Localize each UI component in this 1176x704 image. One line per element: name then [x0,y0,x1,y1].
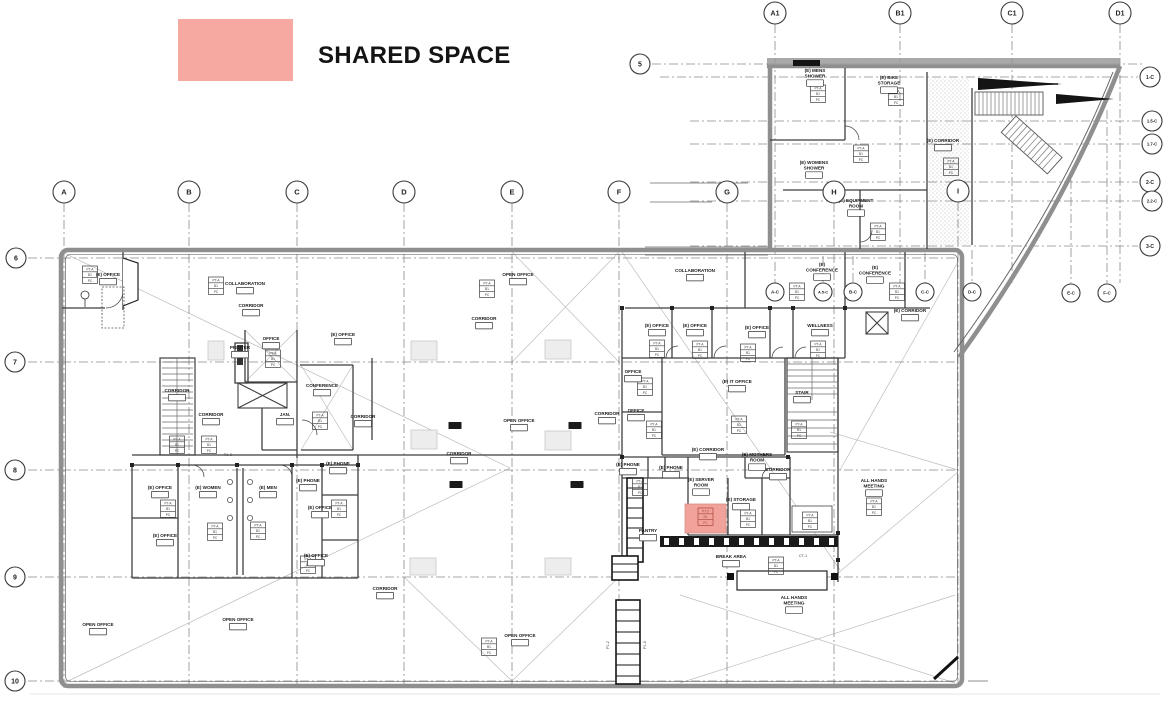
svg-text:PT-A: PT-A [772,558,780,562]
svg-text:PT-A: PT-A [744,345,752,349]
svg-text:F: F [617,188,622,197]
svg-text:(E) PHONE: (E) PHONE [296,478,320,483]
svg-text:B1: B1 [88,273,92,277]
svg-text:(E) WOMEN: (E) WOMEN [195,485,221,490]
svg-text:(E) BIKE: (E) BIKE [880,75,898,80]
finish-tag: PT-AB1PC [871,223,886,240]
svg-text:OPEN OFFICE: OPEN OFFICE [222,617,253,622]
room-label: CORRIDOR [446,451,472,464]
grid-bubble-D-C: D-C [963,283,981,301]
svg-text:PC: PC [816,98,821,102]
grid-bubble-I: I [947,180,969,202]
svg-text:BREAK AREA: BREAK AREA [716,554,747,559]
grid-bubble-6: 6 [6,248,26,268]
svg-text:B1: B1 [859,152,863,156]
svg-text:B1: B1 [166,507,170,511]
svg-text:1.5-C: 1.5-C [1147,119,1157,124]
svg-text:PT-A: PT-A [485,639,493,643]
stair-annex-straight [975,92,1043,115]
svg-text:B1: B1 [795,290,799,294]
finish-tag: PT-AB1PC [854,145,869,162]
svg-text:PC: PC [487,651,492,655]
grid-bubble-3-C: 3-C [1140,236,1160,256]
svg-text:CORRIDOR: CORRIDOR [198,412,224,417]
legend-swatch-shared-space [178,19,293,81]
svg-text:PC: PC [795,296,800,300]
room-label: ALL HANDSMEETING [781,595,807,613]
room-label: (E) OFFICE [331,332,355,345]
room-label: CORRIDOR [238,303,264,316]
svg-text:2.2-C: 2.2-C [1147,199,1157,204]
finish-tag: PT-AB1PC [890,283,905,300]
svg-text:ROOM: ROOM [694,482,708,487]
room-label: (E) WOMEN [195,485,221,498]
svg-text:PC: PC [895,296,900,300]
svg-text:OFFICE: OFFICE [263,336,280,341]
grid-lines [28,24,1145,688]
svg-text:SHOWER: SHOWER [804,165,825,170]
grid-bubble-10: 10 [5,671,25,691]
room-label: (E) WOMENSSHOWER [800,160,829,178]
grid-bubble-5: 5 [630,54,650,74]
grid-bubble-1.7-C: 1.7-C [1142,134,1162,154]
room-label: (E) PHONE [659,465,683,478]
svg-text:A.5-C: A.5-C [818,290,828,294]
grid-bubble-D: D [393,181,415,203]
svg-text:PT-A: PT-A [211,524,219,528]
kitchen-counter [660,536,838,547]
grid-bubble-G: G [716,181,738,203]
svg-text:B1: B1 [746,517,750,521]
room-label: COLLABORATION [675,268,716,281]
grid-bubble-C-C: C-C [916,283,934,301]
finish-tag: PT-AB1PC [741,344,756,361]
svg-text:P1-2: P1-2 [606,641,610,649]
svg-text:B1: B1 [652,428,656,432]
svg-text:PT-A: PT-A [254,523,262,527]
svg-text:WELLNESS: WELLNESS [807,323,833,328]
room-label: ALL HANDSMEETING [861,478,887,496]
svg-text:PT-A: PT-A [806,513,814,517]
svg-text:(E) OFFICE: (E) OFFICE [683,323,707,328]
svg-text:(E) OFFICE: (E) OFFICE [745,325,769,330]
svg-text:(E) OFFICE: (E) OFFICE [96,272,120,277]
svg-text:ROOM: ROOM [750,457,764,462]
svg-text:9: 9 [13,575,17,582]
svg-text:PC: PC [643,391,648,395]
svg-text:H: H [831,188,836,197]
svg-text:CONFERENCE: CONFERENCE [859,270,891,275]
finish-tag: PT-AB1PC [170,436,185,453]
room-label: (E)CONFERENCE [806,262,838,280]
finish-tag: PT-AB1PC [482,638,497,655]
svg-text:PC: PC [797,434,802,438]
grid-bubble-E-C: E-C [1062,284,1080,302]
svg-text:A: A [61,188,67,197]
svg-text:B1: B1 [207,443,211,447]
svg-text:JAN.: JAN. [280,412,290,417]
svg-text:PT-5: PT-5 [702,509,709,513]
svg-text:B1: B1 [643,385,647,389]
grid-bubble-A1: A1 [764,2,786,24]
grid-bubble-F: F [608,181,630,203]
svg-text:5: 5 [638,62,642,69]
svg-text:CONFERENCE: CONFERENCE [306,383,338,388]
svg-text:10: 10 [11,679,19,686]
room-label: (E) OFFICE [148,485,172,498]
svg-text:B1: B1 [737,423,741,427]
svg-text:PC: PC [652,434,657,438]
room-label: (E) OFFICE [308,505,332,518]
svg-text:PT-A: PT-A [795,422,803,426]
svg-text:A1: A1 [771,11,780,18]
room-label: JAN. [277,412,294,425]
room-label: (E) OFFICE [304,553,328,566]
legend-label: SHARED SPACE [318,42,511,70]
pantry-cabinets [612,478,643,684]
door-panel [123,258,138,306]
svg-text:PC: PC [306,569,311,573]
svg-text:B: B [186,188,192,197]
svg-text:PT-A: PT-A [212,278,220,282]
svg-text:(E) IT OFFICE: (E) IT OFFICE [722,379,752,384]
svg-text:OPEN OFFICE: OPEN OFFICE [82,622,113,627]
svg-text:PT-A: PT-A [857,146,865,150]
legend: SHARED SPACE [0,0,520,100]
svg-text:(E) PHONE: (E) PHONE [616,462,640,467]
grid-bubble-A: A [53,181,75,203]
svg-text:6: 6 [14,256,18,263]
svg-text:CORRIDOR: CORRIDOR [164,388,190,393]
svg-text:PC: PC [318,425,323,429]
room-label: (E) OFFICE [683,323,707,336]
svg-text:B1: B1 [774,564,778,568]
svg-text:PT-A: PT-A [814,86,822,90]
svg-text:PT-A: PT-A [335,501,343,505]
grid-bubble-1-C: 1-C [1140,67,1160,87]
finish-tag: PT-AB1PC [741,510,756,527]
svg-text:ALL HANDS: ALL HANDS [781,595,807,600]
diagonal-lines [62,252,958,684]
room-label: PRINTER [230,345,251,358]
svg-text:ALL HANDS: ALL HANDS [861,478,887,483]
svg-text:(E) OFFICE: (E) OFFICE [331,332,355,337]
room-label: (E) BIKESTORAGE [878,75,901,93]
room-label: (E) EQUIPMENTROOM [839,198,874,216]
svg-text:PC: PC [214,290,219,294]
grid-bubble-B-C: B-C [844,283,862,301]
svg-text:PT-A: PT-A [173,437,181,441]
svg-text:OPEN OFFICE: OPEN OFFICE [503,418,534,423]
svg-text:G: G [724,188,730,197]
svg-text:PC: PC [746,357,751,361]
svg-text:(E) MEN: (E) MEN [259,485,277,490]
grid-bubble-E: E [501,181,523,203]
svg-text:PC: PC [698,354,703,358]
svg-text:D1: D1 [1116,11,1125,18]
svg-text:I: I [957,187,959,196]
svg-text:PT-A: PT-A [316,413,324,417]
svg-text:PC: PC [703,521,708,525]
svg-text:PT-A: PT-A [650,422,658,426]
svg-text:COLLABORATION: COLLABORATION [675,268,716,273]
section-mark [934,657,958,679]
svg-text:P1-0: P1-0 [643,641,647,649]
svg-text:PT-A: PT-A [874,224,882,228]
svg-text:B1: B1 [256,529,260,533]
svg-text:(E) MENS: (E) MENS [805,68,826,73]
svg-text:(E) OFFICE: (E) OFFICE [645,323,669,328]
svg-text:PT-A: PT-A [653,341,661,345]
svg-text:B1: B1 [816,92,820,96]
svg-text:PT-A: PT-A [269,351,277,355]
finish-tag: PT-AB1PC [811,341,826,358]
room-label: (E) OFFICE [745,325,769,338]
svg-text:B1: B1 [213,530,217,534]
svg-text:PC: PC [949,171,954,175]
svg-text:PC: PC [207,449,212,453]
finish-tag: PT-AB1PC [811,85,826,102]
grid-bubble-A.5-C: A.5-C [814,283,832,301]
svg-text:(E) OFFICE: (E) OFFICE [153,533,177,538]
svg-text:CORRIDOR: CORRIDOR [765,467,791,472]
svg-text:B1: B1 [949,165,953,169]
svg-text:CORRIDOR: CORRIDOR [238,303,264,308]
finish-tag: PT-AB1PC [332,500,347,517]
floor-plan-drawing: PT-5B1PCPT-AB1PCPT-AB1PCPT-AB1PCPT-AB1PC… [0,0,1176,704]
svg-text:B1: B1 [175,443,179,447]
svg-text:CORRIDOR: CORRIDOR [350,414,376,419]
room-label: (E) STORAGE [726,497,756,510]
grid-bubble-C: C [286,181,308,203]
svg-text:STAIR: STAIR [795,390,809,395]
svg-text:B1: B1 [876,230,880,234]
room-label: STAIR [794,390,811,403]
room-label: (E) OFFICE [645,323,669,336]
finish-tag: PT-AB1PC [867,498,882,515]
floor-plan-canvas: PT-5B1PCPT-AB1PCPT-AB1PCPT-AB1PCPT-AB1PC… [0,0,1176,704]
svg-text:8: 8 [13,468,17,475]
svg-text:(E) OFFICE: (E) OFFICE [308,505,332,510]
svg-text:PT-A: PT-A [636,479,644,483]
svg-text:PRINTER: PRINTER [230,345,251,350]
grid-bubble-C1: C1 [1001,2,1023,24]
grid-bubble-9: 9 [5,567,25,587]
break-table [737,571,827,590]
room-label: (E) CORRIDOR [692,447,725,460]
room-label: CORRIDOR [164,388,190,401]
svg-text:PT-A: PT-A [870,499,878,503]
room-label: OFFICE [263,336,280,349]
room-label: PANTRY [639,528,657,541]
room-label: WELLNESS [807,323,833,336]
svg-text:P1-C: P1-C [224,453,233,457]
svg-text:PT-A: PT-A [893,284,901,288]
svg-text:7: 7 [13,360,17,367]
svg-text:C: C [294,188,300,197]
finish-tag: PT-AB1PC [202,436,217,453]
svg-text:STORAGE: STORAGE [878,80,901,85]
svg-text:PC: PC [166,513,171,517]
interior-walls [62,68,972,582]
svg-text:PT-A: PT-A [696,342,704,346]
svg-text:(E) OFFICE: (E) OFFICE [148,485,172,490]
svg-text:PC: PC [859,158,864,162]
room-label: OPEN OFFICE [502,272,533,285]
svg-text:B1: B1 [698,348,702,352]
grid-bubble-F-C: F-C [1098,284,1116,302]
svg-text:E-C: E-C [1067,291,1076,296]
room-label: COLLABORATION [225,281,266,294]
room-label: OFFICE [625,369,642,382]
finish-tag: PT-AB1PC [161,500,176,517]
svg-text:OFFICE: OFFICE [625,369,642,374]
grid-bubble-1.5-C: 1.5-C [1142,111,1162,131]
svg-text:PC: PC [894,101,899,105]
svg-text:CONFERENCE: CONFERENCE [806,267,838,272]
svg-text:B1: B1 [872,505,876,509]
svg-text:B1: B1 [271,357,275,361]
svg-text:PC: PC [213,536,218,540]
svg-text:C-C: C-C [921,290,930,295]
room-label: CORRIDOR [198,412,224,425]
dashed-zone [102,287,124,328]
svg-text:SHOWER: SHOWER [805,73,826,78]
svg-text:B1: B1 [797,428,801,432]
finish-tag: PT-AB1PC [790,283,805,300]
svg-text:PT-A: PT-A [793,284,801,288]
room-label: OPEN OFFICE [222,617,253,630]
toilet-fixtures [227,479,252,520]
svg-text:B1: B1 [895,290,899,294]
grid-bubble-A-C: A-C [766,283,784,301]
svg-text:B1: B1 [896,11,905,18]
svg-text:B1: B1 [894,95,898,99]
svg-text:B1: B1 [487,645,491,649]
svg-text:F-C: F-C [1103,291,1111,296]
svg-text:D-C: D-C [968,290,977,295]
svg-text:B1: B1 [816,348,820,352]
svg-text:(E) PHONE: (E) PHONE [659,465,683,470]
shared-space-highlight[interactable]: PT-5B1PC [685,504,726,533]
room-label: (E) OFFICE [96,272,120,285]
svg-text:B1: B1 [746,351,750,355]
room-label: OPEN OFFICE [82,622,113,635]
svg-text:3-C: 3-C [1146,244,1154,250]
svg-text:B1: B1 [808,519,812,523]
svg-text:B1: B1 [214,284,218,288]
svg-text:PT-A: PT-A [814,342,822,346]
room-label: (E) SERVERROOM [688,477,715,495]
grid-bubble-7: 7 [5,352,25,372]
room-label: CORRIDOR [372,586,398,599]
svg-text:PANTRY: PANTRY [639,528,657,533]
svg-text:PC: PC [876,236,881,240]
svg-text:(E) CORRIDOR: (E) CORRIDOR [692,447,725,452]
svg-text:PC: PC [774,570,779,574]
svg-text:B1: B1 [318,419,322,423]
svg-text:PC: PC [175,449,180,453]
svg-text:(E) PHONE: (E) PHONE [326,461,350,466]
svg-text:D: D [401,188,407,197]
svg-text:PC: PC [655,353,660,357]
svg-text:PC: PC [88,279,93,283]
svg-text:PT-A: PT-A [86,267,94,271]
svg-text:PT-A: PT-A [205,437,213,441]
svg-text:PT-A: PT-A [744,511,752,515]
svg-text:(E) WOMENS: (E) WOMENS [800,160,829,165]
grid-bubble-B1: B1 [889,2,911,24]
svg-text:(E) CORRIDOR: (E) CORRIDOR [927,138,960,143]
svg-text:E: E [509,188,514,197]
svg-text:PC: PC [485,293,490,297]
svg-text:PC: PC [737,429,742,433]
svg-text:COLLABORATION: COLLABORATION [225,281,266,286]
svg-text:B1: B1 [485,287,489,291]
stair-east [787,358,838,452]
room-label: (E)CONFERENCE [859,265,891,283]
svg-text:(E) EQUIPMENT: (E) EQUIPMENT [839,198,874,203]
svg-text:C1: C1 [1008,11,1017,18]
room-label: (E) CORRIDOR [894,308,927,321]
room-label: (E) MEN [259,485,277,498]
room-label: CORRIDOR [471,316,497,329]
door-arcs [106,126,872,478]
svg-text:CORRIDOR: CORRIDOR [372,586,398,591]
svg-text:OFFICE: OFFICE [628,408,645,413]
room-label: (E) PHONE [616,462,640,475]
room-label: (E) OFFICE [153,533,177,546]
svg-text:PC: PC [337,513,342,517]
svg-text:PT-A: PT-A [483,281,491,285]
svg-text:PC: PC [872,511,877,515]
svg-text:PC: PC [746,523,751,527]
grid-bubble-D1: D1 [1109,2,1131,24]
svg-text:PT-A: PT-A [164,501,172,505]
svg-text:B-C: B-C [849,290,858,295]
room-label: OFFICE [628,408,645,421]
svg-text:1-C: 1-C [1146,75,1154,81]
svg-text:MEETING: MEETING [864,483,885,488]
svg-text:B1: B1 [638,485,642,489]
svg-text:PT-A: PT-A [947,159,955,163]
room-label: CONFERENCE [306,383,338,396]
finish-tag: PT-AB1PC [650,340,665,357]
stairs [160,78,1114,455]
svg-text:(E) MOTHERS: (E) MOTHERS [742,452,772,457]
grid-bubble-2.2-C: 2.2-C [1142,191,1162,211]
finish-tag: PT-AB1PC [693,341,708,358]
stair-annex-diagonal [1001,116,1062,174]
svg-text:PT-A: PT-A [735,417,743,421]
room-label: (E) MENSSHOWER [805,68,826,86]
room-label: CORRIDOR [594,411,620,424]
svg-text:ROOM: ROOM [849,203,863,208]
svg-text:B1: B1 [337,507,341,511]
finish-tag: PT-AB1PC [480,280,495,297]
svg-text:A-C: A-C [771,290,780,295]
grid-bubble-2-C: 2-C [1140,172,1160,192]
svg-text:(E) SERVER: (E) SERVER [688,477,715,482]
svg-text:PT-A: PT-A [641,379,649,383]
svg-text:(E) CORRIDOR: (E) CORRIDOR [894,308,927,313]
room-label: BREAK AREA [716,554,747,567]
finish-tag: PT-AB1PC [208,523,223,540]
finish-tag: PT-AB1PC [251,522,266,539]
svg-text:OPEN OFFICE: OPEN OFFICE [504,633,535,638]
room-label: OPEN OFFICE [503,418,534,431]
room-label: OPEN OFFICE [504,633,535,646]
